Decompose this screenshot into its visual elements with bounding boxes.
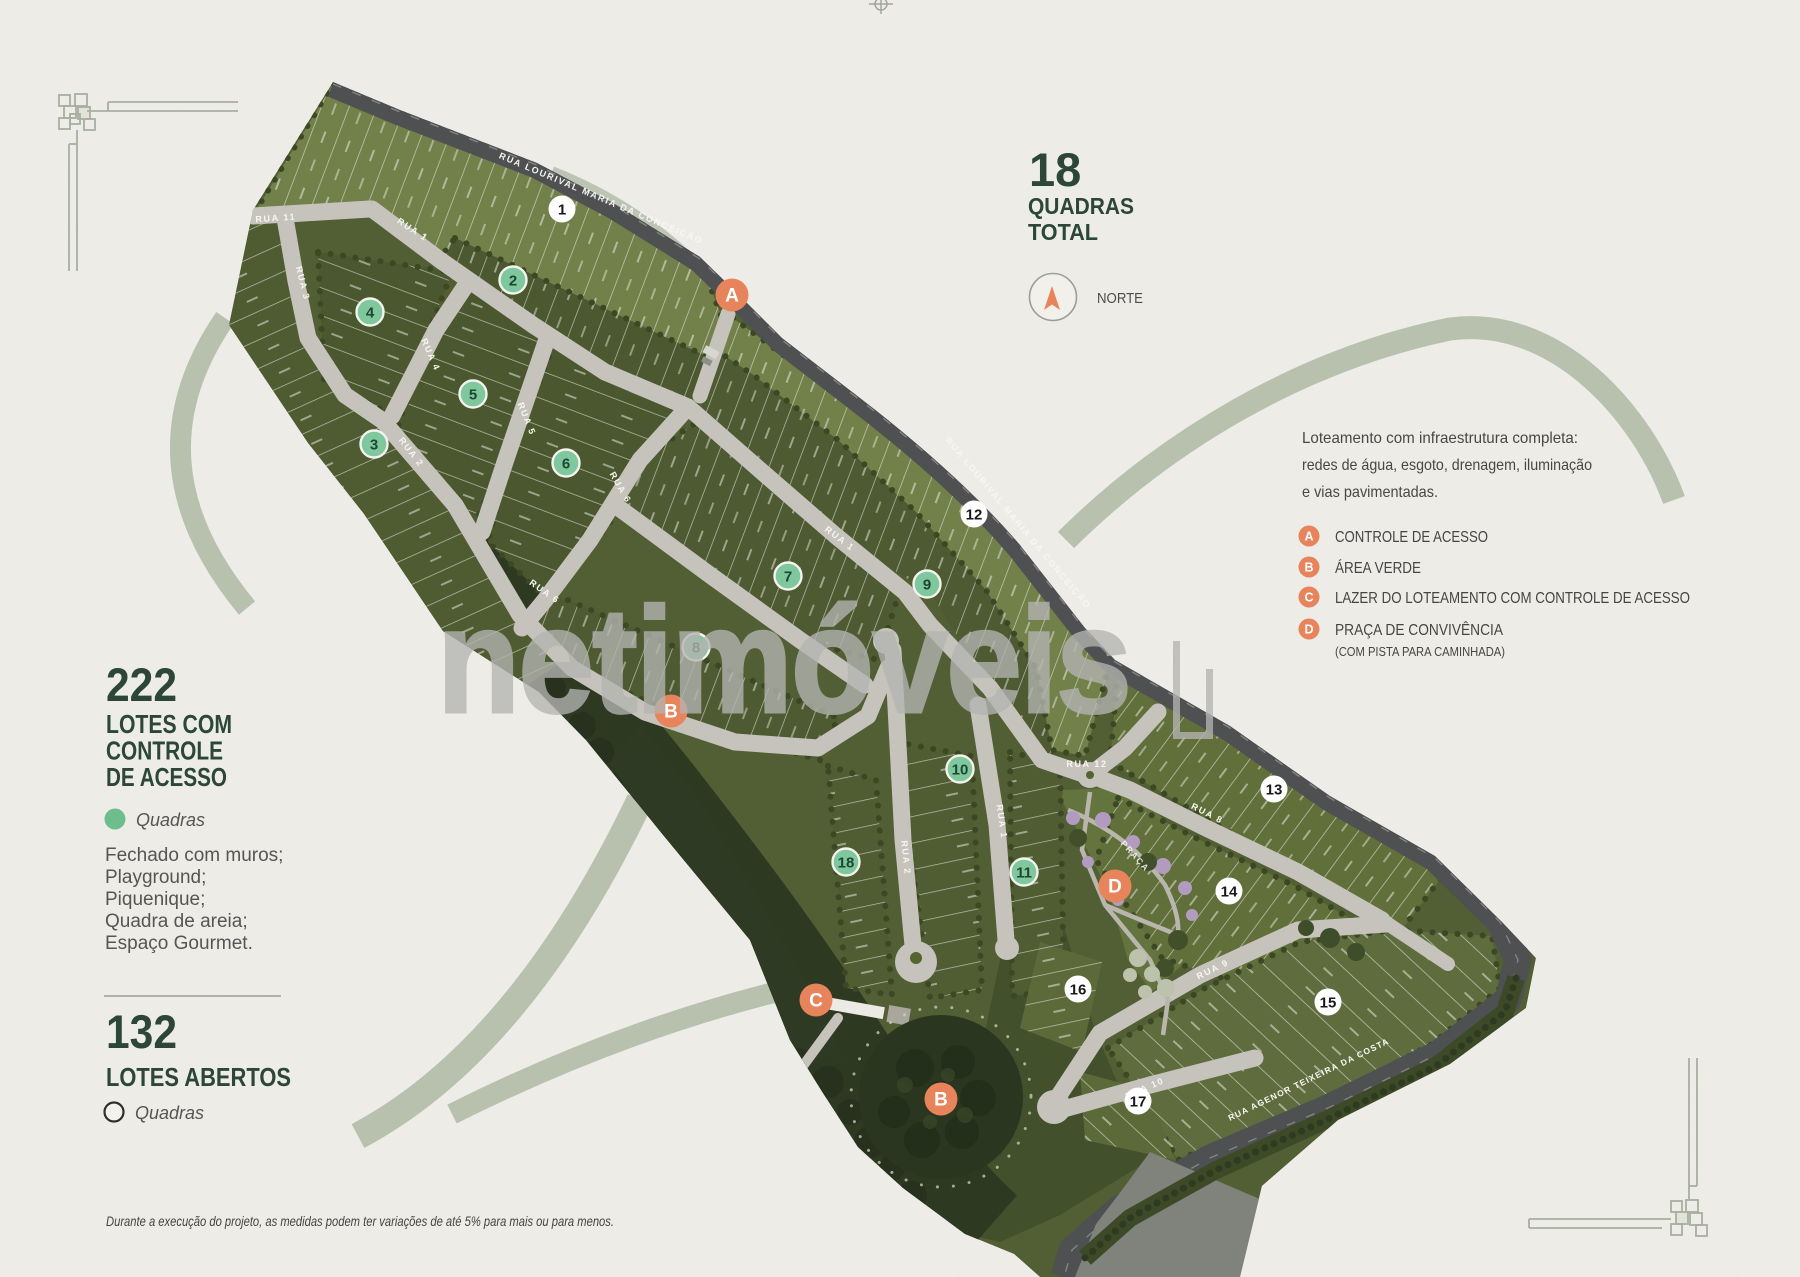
svg-text:11: 11 — [1016, 865, 1032, 882]
svg-text:Fechado com muros;: Fechado com muros; — [105, 845, 283, 866]
svg-text:CONTROLE DE ACESSO: CONTROLE DE ACESSO — [1335, 529, 1488, 546]
svg-text:A: A — [1304, 530, 1313, 544]
svg-text:Durante a execução do projeto,: Durante a execução do projeto, as medida… — [106, 1213, 614, 1229]
svg-text:ÁREA VERDE: ÁREA VERDE — [1335, 560, 1421, 577]
svg-text:13: 13 — [1266, 782, 1283, 799]
svg-text:Playground;: Playground; — [105, 867, 206, 888]
svg-text:6: 6 — [562, 456, 570, 473]
svg-text:D: D — [1108, 877, 1122, 898]
svg-text:1: 1 — [558, 202, 566, 219]
svg-text:Quadras: Quadras — [135, 1103, 204, 1123]
svg-text:3: 3 — [370, 437, 378, 454]
svg-text:15: 15 — [1320, 995, 1337, 1012]
svg-text:LOTES ABERTOS: LOTES ABERTOS — [106, 1062, 291, 1092]
svg-text:Espaço Gourmet.: Espaço Gourmet. — [105, 933, 253, 954]
svg-text:PRAÇA DE CONVIVÊNCIA: PRAÇA DE CONVIVÊNCIA — [1335, 622, 1504, 639]
svg-text:18: 18 — [1029, 143, 1081, 196]
svg-text:18: 18 — [838, 855, 855, 872]
svg-text:redes de água, esgoto, drenage: redes de água, esgoto, drenagem, ilumina… — [1302, 457, 1592, 474]
svg-text:TOTAL: TOTAL — [1028, 219, 1098, 245]
svg-text:NORTE: NORTE — [1097, 290, 1143, 307]
svg-text:222: 222 — [106, 658, 177, 711]
svg-text:RUA 12: RUA 12 — [1066, 759, 1107, 769]
svg-text:16: 16 — [1070, 982, 1087, 999]
svg-text:D: D — [1304, 623, 1313, 637]
svg-text:2: 2 — [509, 273, 517, 290]
svg-text:12: 12 — [966, 507, 983, 524]
svg-text:17: 17 — [1130, 1094, 1147, 1111]
svg-text:B: B — [934, 1090, 948, 1111]
svg-text:CONTROLE: CONTROLE — [106, 736, 223, 766]
svg-text:LOTES COM: LOTES COM — [106, 709, 232, 739]
svg-text:QUADRAS: QUADRAS — [1028, 193, 1134, 219]
svg-text:4: 4 — [366, 305, 375, 322]
svg-text:A: A — [725, 286, 739, 307]
svg-text:C: C — [1304, 591, 1313, 605]
svg-text:5: 5 — [469, 387, 477, 404]
svg-text:Quadras: Quadras — [136, 810, 205, 830]
svg-text:10: 10 — [952, 762, 969, 779]
svg-text:B: B — [1304, 561, 1313, 575]
svg-text:DE ACESSO: DE ACESSO — [106, 762, 227, 792]
svg-text:132: 132 — [106, 1005, 177, 1058]
svg-text:C: C — [809, 991, 823, 1012]
svg-text:LAZER DO LOTEAMENTO COM CONTRO: LAZER DO LOTEAMENTO COM CONTROLE DE ACES… — [1335, 590, 1690, 607]
svg-text:netimóveis: netimóveis — [437, 576, 1130, 744]
svg-text:Quadra de areia;: Quadra de areia; — [105, 911, 248, 932]
svg-text:14: 14 — [1221, 884, 1238, 901]
svg-text:Loteamento com infraestrutura: Loteamento com infraestrutura completa: — [1302, 430, 1578, 447]
svg-text:e vias pavimentadas.: e vias pavimentadas. — [1302, 484, 1438, 501]
svg-text:(COM PISTA PARA CAMINHADA): (COM PISTA PARA CAMINHADA) — [1335, 645, 1505, 659]
svg-text:Piquenique;: Piquenique; — [105, 889, 205, 910]
